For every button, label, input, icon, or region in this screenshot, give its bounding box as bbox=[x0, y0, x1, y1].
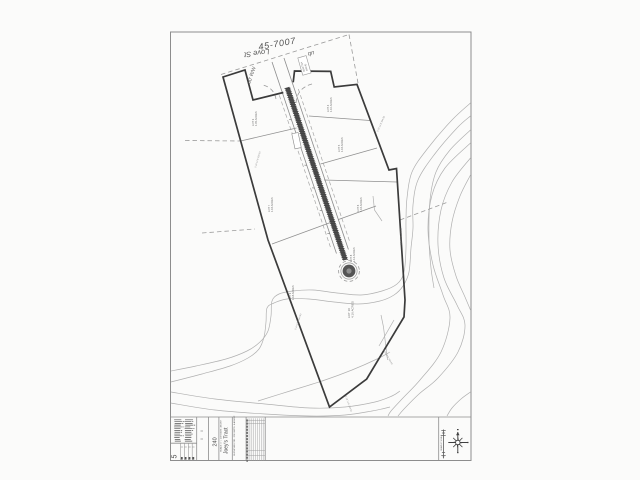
svg-text:1.05 ACRES: 1.05 ACRES bbox=[254, 111, 258, 126]
svg-text:1.18 ACRES: 1.18 ACRES bbox=[291, 285, 295, 300]
svg-text:GRAPHIC SCALE: GRAPHIC SCALE bbox=[440, 434, 443, 451]
svg-text:1.16 ACRES: 1.16 ACRES bbox=[340, 137, 344, 152]
svg-text:1.16 ACRES: 1.16 ACRES bbox=[359, 197, 363, 212]
svg-text:4.16 ACRES: 4.16 ACRES bbox=[351, 301, 355, 318]
svg-text:Joey's Tract: Joey's Tract bbox=[223, 427, 229, 454]
svg-text:1.16 ACRES: 1.16 ACRES bbox=[270, 197, 274, 212]
svg-text:SURVEYED FOR: JOE SMITH & ASSO: SURVEYED FOR: JOE SMITH & ASSOC bbox=[233, 415, 236, 456]
svg-text:5: 5 bbox=[172, 455, 179, 459]
svg-text:1.12 ACRES: 1.12 ACRES bbox=[352, 247, 356, 262]
svg-text:SCALE: 1" = 100' DATE: 4/10/: SCALE: 1" = 100' DATE: 4/10/97 bbox=[220, 419, 223, 452]
svg-text:240: 240 bbox=[212, 437, 218, 446]
svg-text:1.10 ACRES: 1.10 ACRES bbox=[329, 97, 333, 112]
